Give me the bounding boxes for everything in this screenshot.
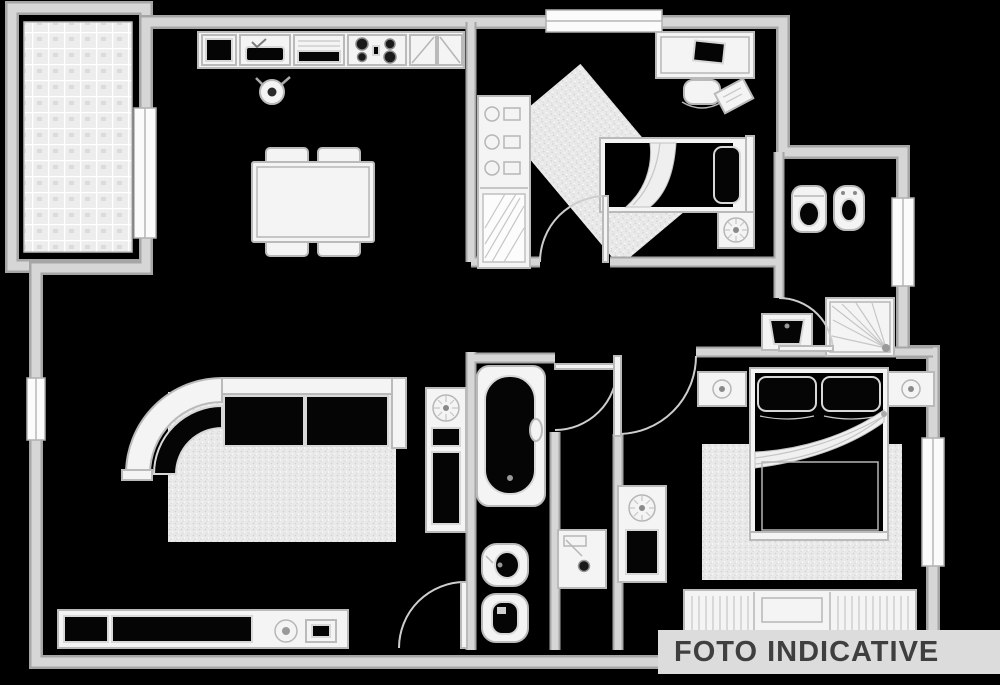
window-icon <box>892 198 914 286</box>
sideboard <box>58 610 348 648</box>
toilet-icon <box>792 186 826 232</box>
cabinet-icon <box>410 35 462 65</box>
nightstand <box>698 372 746 406</box>
toilet-icon <box>482 594 528 642</box>
single-bed <box>600 136 754 214</box>
dining-table <box>252 162 374 242</box>
bedroom2-door-arc <box>614 356 696 436</box>
wardrobe <box>478 96 530 268</box>
nightstand <box>888 372 934 406</box>
bidet-icon <box>482 544 528 586</box>
double-bed <box>750 368 888 540</box>
floor-plan-canvas <box>0 0 1000 685</box>
room-bathroom-2 <box>477 364 617 642</box>
room-bedroom-2 <box>618 368 934 648</box>
window-icon <box>922 438 944 566</box>
bathtub-icon <box>477 366 545 506</box>
dining-set <box>252 148 374 256</box>
washbasin-icon <box>762 314 812 350</box>
drainer-icon <box>294 35 344 65</box>
hall-cabinet <box>618 486 666 582</box>
kitchen-sink-icon <box>240 35 290 65</box>
terrace <box>12 8 146 266</box>
entrance-door-arc <box>399 582 467 648</box>
terrace-door-icon <box>134 108 156 238</box>
moka-pot-icon <box>256 77 290 104</box>
shower-icon <box>826 298 894 356</box>
desk <box>656 32 754 78</box>
watermark-banner: FOTO INDICATIVE <box>658 630 1000 674</box>
window-icon <box>546 10 662 32</box>
kitchen-counter <box>198 32 464 68</box>
pillow <box>822 377 880 411</box>
pillow <box>758 377 816 411</box>
notebook-icon <box>715 79 754 113</box>
watermark-text: FOTO INDICATIVE <box>674 636 939 669</box>
laptop-icon <box>693 40 725 63</box>
bidet-icon <box>834 186 864 230</box>
pillow <box>714 147 740 203</box>
washing-machine-icon <box>558 530 606 588</box>
terrace-tiled-floor <box>24 22 132 252</box>
bath-cabinet <box>426 388 466 532</box>
plant-icon <box>718 212 754 248</box>
stove-icon <box>348 35 406 65</box>
bathroom2-door-arc <box>555 364 617 430</box>
window-icon <box>27 378 45 440</box>
